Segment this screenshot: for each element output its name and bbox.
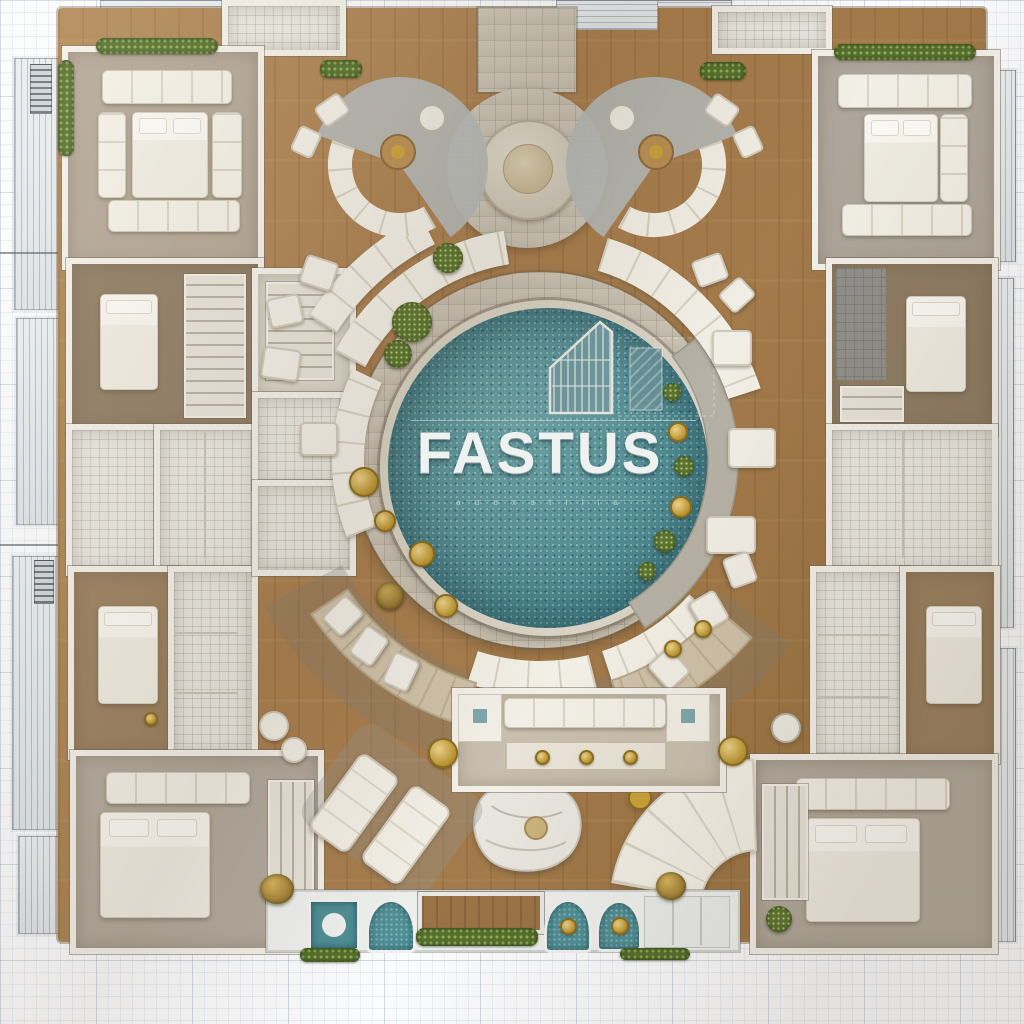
console-table — [728, 428, 776, 468]
bed — [864, 114, 938, 202]
pillow — [932, 612, 976, 626]
blueprint-section-marker-1 — [30, 64, 52, 114]
partition-wall — [174, 632, 238, 634]
gold-flower — [611, 917, 629, 935]
pillow — [903, 120, 931, 136]
console-shelf — [506, 742, 666, 770]
gold-plate — [374, 510, 396, 532]
round-plate-table — [259, 711, 289, 741]
gold-plate — [434, 594, 458, 618]
bedroom-bottom-right-a — [900, 566, 1000, 764]
mosaic-arch-panel — [544, 899, 592, 953]
gold-dish — [694, 620, 712, 638]
gold-side-table — [718, 736, 748, 766]
partition-wall — [204, 430, 206, 558]
console-table — [712, 330, 752, 366]
blueprint-section-marker-2 — [34, 560, 54, 604]
marble-table-centerpiece — [503, 144, 553, 194]
golden-shrub — [376, 582, 404, 610]
bed — [906, 296, 966, 392]
dark-bathroom — [836, 268, 886, 380]
pillow — [173, 118, 201, 134]
gold-dish — [664, 640, 682, 658]
pillow — [157, 819, 197, 837]
sofa-cushion-row — [838, 74, 972, 108]
pillow — [815, 825, 857, 843]
lamp-gold — [144, 712, 158, 726]
pillow — [106, 300, 152, 314]
chaise-right — [940, 114, 968, 202]
porthole-circle — [322, 913, 346, 937]
potted-plant — [766, 906, 792, 932]
golden-bouquet — [656, 872, 686, 900]
pool-title-fastus: FASTUS — [370, 420, 710, 487]
wardrobe-shelves — [184, 274, 246, 418]
hedge-left-vertical — [58, 60, 74, 156]
pillow — [109, 819, 149, 837]
corner-pillar — [458, 694, 502, 742]
bedroom-suite-top-right — [812, 50, 1000, 270]
sofa-cushion-row — [842, 204, 972, 236]
bedroom-suite-bottom-right — [750, 754, 998, 954]
pillow — [912, 302, 960, 316]
closet-mid-left-3 — [252, 480, 356, 576]
bathroom-left-inner — [154, 424, 262, 576]
golden-bouquet — [260, 874, 294, 904]
shrub — [663, 383, 681, 401]
entry-stone-path — [478, 8, 576, 92]
mosaic-panel — [308, 899, 360, 951]
corner-pillar — [666, 694, 710, 742]
hedge-top-right — [834, 44, 976, 60]
bed — [100, 812, 210, 918]
teal-inset — [681, 709, 695, 723]
dresser — [762, 784, 808, 900]
mosaic-arch-panel — [366, 899, 416, 953]
loveseat — [260, 346, 302, 383]
corridor-closet-bottom-left — [168, 566, 258, 760]
round-plate-table — [281, 737, 307, 763]
partition-wall — [816, 696, 890, 698]
bedroom-left-middle — [66, 258, 264, 436]
divider — [700, 897, 702, 945]
gold-ornament — [579, 750, 594, 765]
bathroom-right — [826, 424, 998, 576]
hedge-below-wall — [620, 948, 690, 960]
floorplan-render: FASTUS a u o x a t i l i a — [0, 0, 1024, 1024]
teal-inset — [473, 709, 487, 723]
pillow — [104, 612, 152, 626]
media-lounge — [452, 688, 726, 792]
bed — [100, 294, 158, 390]
pool-tagline: a u o x a t i l i a — [400, 498, 680, 507]
divider — [672, 897, 674, 945]
mosaic-arch-panel — [596, 900, 642, 952]
pillow — [139, 118, 167, 134]
sofa-cushion-row — [504, 698, 666, 728]
shrub — [384, 340, 412, 368]
gold-medallion — [560, 918, 577, 935]
shrub — [433, 243, 463, 273]
partition-wall — [902, 430, 904, 558]
sofa-cushion-row — [106, 772, 250, 804]
bed — [926, 606, 982, 704]
gold-ornament — [623, 750, 638, 765]
gold-side-table — [428, 738, 458, 768]
sofa-cushion-row — [796, 778, 950, 810]
bedroom-bottom-left-a — [68, 566, 180, 760]
bedroom-right-middle — [826, 258, 998, 436]
hedge-planter — [416, 928, 538, 946]
pillow — [865, 825, 907, 843]
closet-mid-left-1 — [252, 268, 356, 402]
bed — [98, 606, 158, 704]
planter-top-left — [320, 60, 362, 78]
bed — [132, 112, 208, 198]
storage-blocks — [644, 896, 730, 948]
chaise-left — [98, 112, 126, 198]
shrub — [392, 302, 432, 342]
corridor-closet-bottom-right — [810, 566, 910, 764]
bedroom-suite-top-left — [62, 46, 264, 270]
bathroom-left-outer — [66, 424, 166, 576]
sofa-cushion-row — [108, 200, 240, 232]
partition-wall — [816, 634, 890, 636]
planter-top-right — [700, 62, 746, 80]
hedge-top-left — [96, 38, 218, 54]
gold-plate — [409, 541, 435, 567]
shrub — [638, 562, 656, 580]
side-table — [300, 422, 338, 456]
pillow — [871, 120, 899, 136]
partition-wall — [174, 692, 238, 694]
hedge-below-wall — [300, 948, 360, 962]
console-table — [706, 516, 756, 554]
balcony-top-right — [712, 6, 832, 54]
gold-ornament — [535, 750, 550, 765]
sofa-cushion-row — [102, 70, 232, 104]
shrub — [654, 530, 676, 552]
storage-shelf — [840, 386, 904, 422]
chaise-right — [212, 112, 242, 198]
bed — [806, 818, 920, 922]
